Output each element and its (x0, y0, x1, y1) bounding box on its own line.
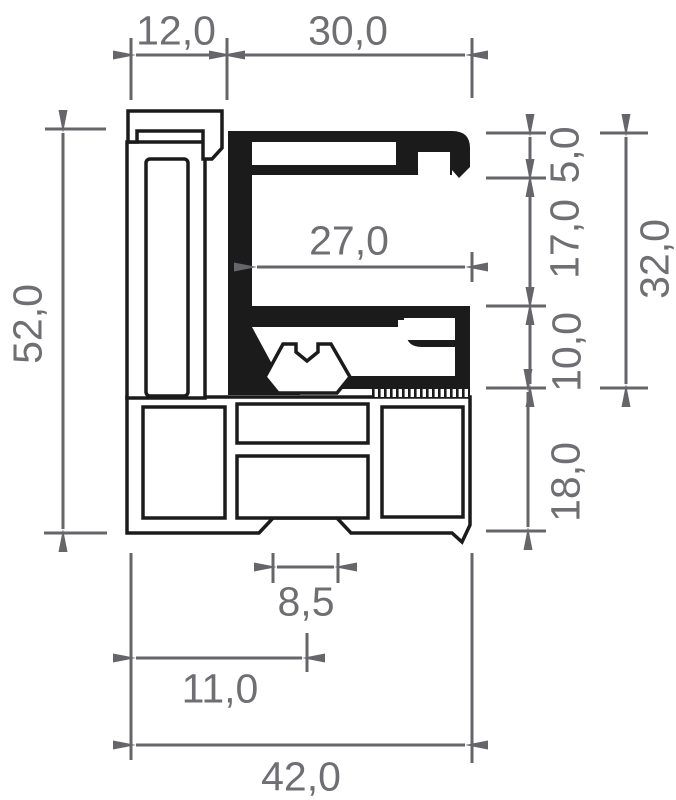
dim-label-5: 5,0 (541, 127, 587, 184)
bottom-profile-chamber-left (143, 407, 225, 518)
dim-label-11: 11,0 (182, 665, 259, 711)
dim-label-12: 12,0 (136, 7, 216, 53)
bead-top-bar-slot (252, 142, 396, 165)
dim-label-52: 52,0 (4, 284, 50, 364)
bottom-profile-chamber-bottom-middle (237, 456, 368, 518)
dim-label-10: 10,0 (543, 312, 589, 392)
dim-label-17: 17,0 (541, 199, 587, 279)
bead-right-notch (404, 318, 455, 340)
frame-left-profile (127, 111, 222, 398)
bottom-profile-chamber-right (382, 407, 463, 517)
dim-label-85: 8,5 (278, 578, 335, 624)
left-profile-chamber (146, 159, 188, 396)
bead-bottom-bar (228, 306, 398, 327)
bead-right-flange (338, 376, 470, 389)
bead-left-wall (228, 131, 252, 383)
bottom-profile-chamber-top-middle (237, 404, 368, 443)
gasket-tape-hatched (372, 389, 470, 397)
dim-label-42: 42,0 (261, 753, 341, 799)
dim-label-27: 27,0 (309, 217, 389, 263)
dim-label-30: 30,0 (308, 7, 388, 53)
technical-drawing-canvas: 12,0 30,0 27,0 52,0 5,0 17,0 10,0 32,0 1… (0, 0, 676, 800)
dim-label-32: 32,0 (631, 219, 676, 299)
bead-right-block (396, 306, 470, 383)
dim-label-18: 18,0 (542, 442, 588, 522)
bead-top-bar-notch (418, 152, 450, 180)
gasket-bulb (265, 344, 350, 393)
profile-cross-section-drawing: 12,0 30,0 27,0 52,0 5,0 17,0 10,0 32,0 1… (0, 0, 676, 800)
glazing-bead-profile (228, 131, 470, 397)
frame-bottom-profile (127, 397, 470, 542)
